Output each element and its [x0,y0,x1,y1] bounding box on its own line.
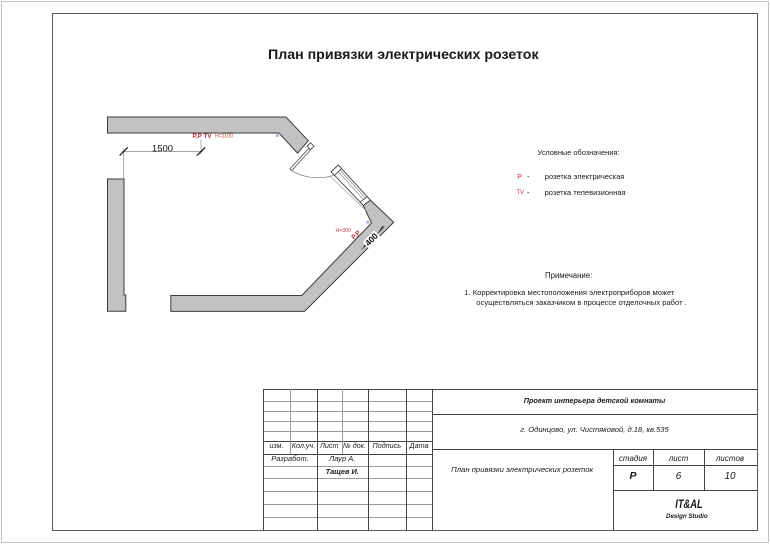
svg-text:1500: 1500 [152,144,173,155]
svg-text:Р,Р TV: Р,Р TV [193,133,213,140]
svg-text:Н=300: Н=300 [336,228,352,234]
svg-text:Н=1100: Н=1100 [215,134,233,140]
